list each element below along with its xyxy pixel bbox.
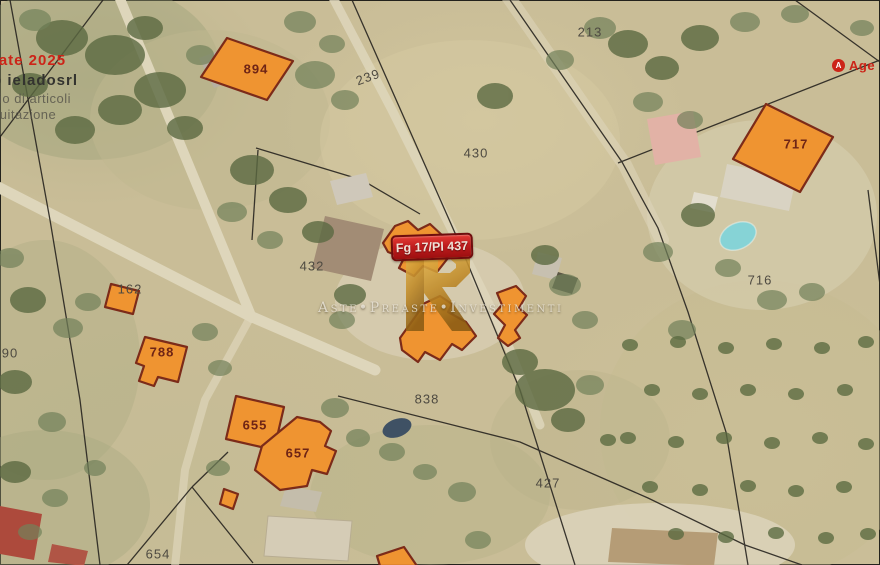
corner-watermark-line3: zio di articoli: [0, 92, 78, 107]
agency-badge: A Age: [832, 58, 875, 73]
watermark-wordmark: Aste•Preaste•Investimenti: [318, 300, 562, 316]
subject-parcel-badge-text: Fg 17/Pl 437: [396, 239, 469, 256]
cadastral-satellite-map: 8942392134307177164321627889065565783842…: [0, 0, 880, 565]
subject-parcel-badge: Fg 17/Pl 437: [391, 233, 474, 262]
corner-watermark-line4: guitazione: [0, 108, 78, 123]
corner-watermark-line2: b ieladosrl: [0, 72, 78, 89]
corner-watermark-line1: rate 2025: [0, 52, 78, 69]
agency-logo-icon: A: [832, 59, 845, 72]
agency-badge-text: Age: [849, 58, 875, 73]
watermark-monogram-icon: [0, 0, 880, 565]
corner-watermark: rate 2025 b ieladosrl zio di articoli gu…: [0, 52, 78, 123]
